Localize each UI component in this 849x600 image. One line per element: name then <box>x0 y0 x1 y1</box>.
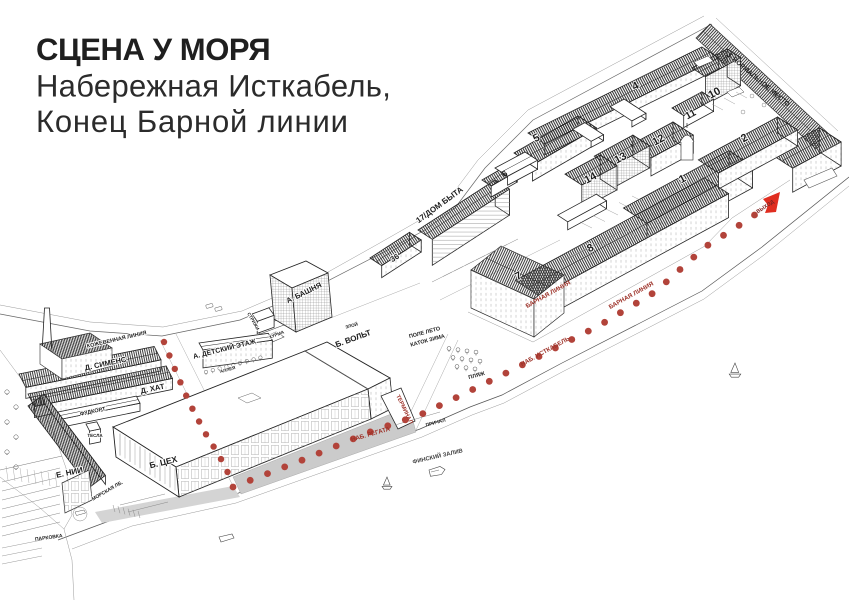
svg-text:ТЕСЛА: ТЕСЛА <box>87 433 103 438</box>
svg-text:Набережная Исткабель,: Набережная Исткабель, <box>36 69 391 104</box>
svg-text:СЦЕНА У МОРЯ: СЦЕНА У МОРЯ <box>36 32 270 67</box>
svg-text:Конец Барной линии: Конец Барной линии <box>36 104 349 139</box>
